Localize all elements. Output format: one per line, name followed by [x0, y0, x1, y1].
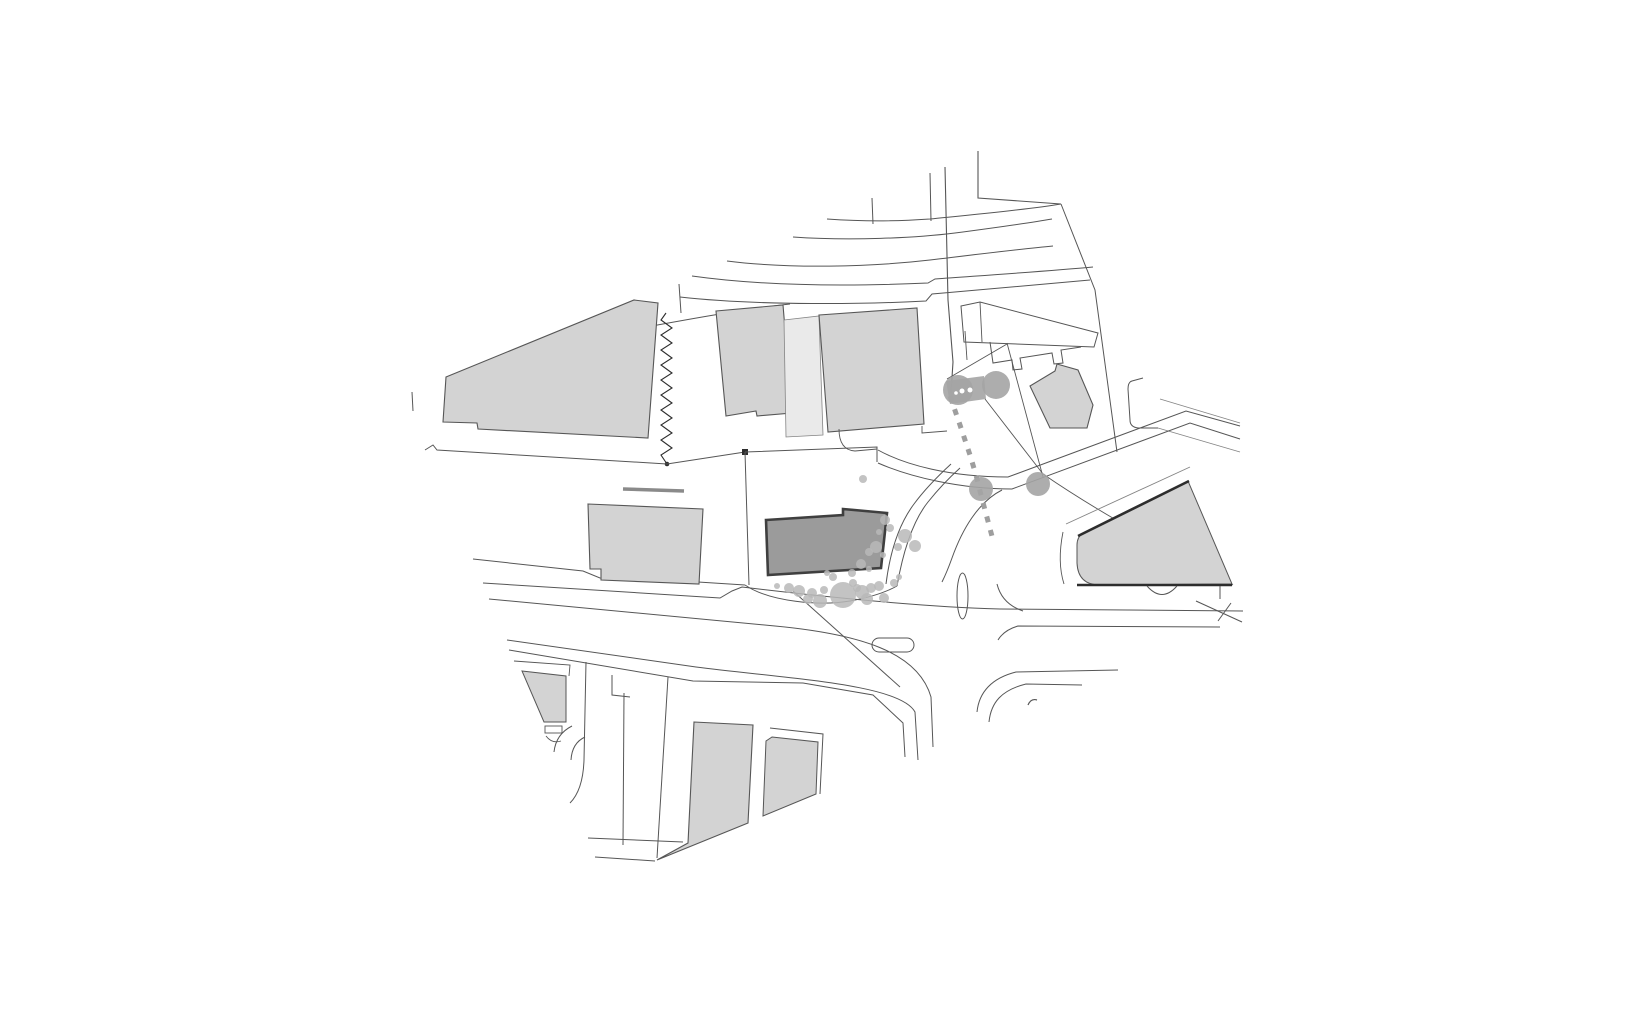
driveway-notch-east [1128, 378, 1158, 428]
sw-bottom-stub-2 [595, 857, 655, 861]
road-edge-under-nw-building [425, 445, 745, 464]
tree-icon [982, 371, 1010, 399]
shrub-icon [874, 581, 884, 591]
shrub-icon [784, 583, 794, 593]
upper-road-curve-2 [793, 219, 1052, 239]
curb-hook-south-street [612, 675, 630, 697]
parcel-top-edge [745, 447, 877, 462]
shrub-icon [853, 584, 861, 592]
upper-road-hook [978, 151, 1061, 204]
sw-street-line-east [657, 677, 668, 858]
curb-arc-left-of-wedge [1060, 532, 1064, 584]
tick-far-left [412, 392, 413, 411]
corner-arc-wedge-west [997, 584, 1023, 611]
building-north-connector [784, 316, 823, 437]
tree-icon [969, 477, 993, 501]
zigzag-property-line [661, 313, 672, 464]
shrub-icon [774, 583, 780, 589]
building-northwest-large [443, 300, 658, 438]
sw-bottom-stub-1 [588, 838, 683, 842]
shrub-icon [898, 529, 912, 543]
main-street-far-lower-edge [998, 626, 1220, 640]
upper-road-curve-1 [827, 204, 1061, 221]
curved-band-outer [897, 468, 960, 586]
south-street-east-arc-1 [977, 670, 1118, 712]
shrub-icon [866, 566, 872, 572]
sw-street-line-mid [623, 693, 624, 845]
upper-road-curve-4 [692, 267, 1093, 285]
tick-mid-upper [679, 284, 681, 313]
tree-icon [1026, 472, 1050, 496]
sw-wedge-step [545, 726, 562, 733]
shrub-icon [890, 579, 898, 587]
shrub-icon [896, 574, 902, 580]
south-street-east-arc-2 [989, 684, 1082, 722]
shrub-icon [803, 594, 813, 604]
site-plan [0, 0, 1640, 1020]
upper-road-curve-5 [680, 280, 1090, 304]
hedge-dot-icon [968, 388, 973, 393]
building-north-b [819, 308, 924, 432]
shrub-icon [886, 524, 894, 532]
shrub-icon [820, 586, 828, 594]
sw-corner-arc-2 [571, 737, 585, 760]
shrub-icon [859, 475, 867, 483]
shrub-icon [856, 559, 866, 569]
shrub-icon [879, 593, 889, 603]
boundary-diag-short [985, 399, 1043, 474]
shrub-icon [793, 585, 805, 597]
traffic-island-oval [957, 573, 968, 619]
ne-road-curb-south [878, 423, 1240, 489]
building-north-a [716, 305, 792, 416]
parcel-west-edge [745, 452, 749, 585]
step-right-of-north-b [922, 426, 947, 433]
ne-road-corner-curve [942, 490, 1002, 582]
hedge-dot-icon [960, 389, 965, 394]
main-building-site [766, 509, 887, 575]
shrub-icon [829, 573, 837, 581]
upper-road-stub-2 [872, 198, 873, 224]
building-south-parallelogram [657, 722, 753, 860]
wall-segment-gray [623, 489, 684, 491]
building-wedge-east [1077, 481, 1232, 585]
building-sw-wedge [522, 671, 566, 722]
apostrophe-mark [1028, 700, 1037, 705]
east-road-edge-1 [1160, 399, 1240, 423]
shrub-icon [880, 552, 886, 558]
shrub-icon [813, 594, 827, 608]
building-ne-rotated [1030, 364, 1093, 428]
traffic-island-rounded [872, 638, 914, 652]
upper-road-stub-1 [930, 173, 931, 221]
shrub-icon [909, 540, 921, 552]
upper-road-curve-3 [727, 246, 1053, 266]
shrub-icon [876, 529, 882, 535]
shrub-icon [861, 593, 873, 605]
sw-corner-arc-1 [554, 726, 572, 752]
survey-line-vertical [945, 167, 953, 393]
hedge-dot-icon [954, 391, 958, 395]
sw-street-curb-west [570, 662, 586, 803]
boundary-ne-slant [1007, 343, 1043, 477]
wedge-bump-arc [1147, 586, 1177, 595]
building-west-small [588, 504, 703, 584]
shrub-icon [865, 548, 873, 556]
shrub-icon [848, 569, 856, 577]
east-road-edge-2 [1158, 428, 1240, 452]
shrub-icon [880, 515, 890, 525]
building-south-b [763, 737, 818, 816]
shrub-icon [894, 543, 902, 551]
site-plan-canvas [0, 0, 1640, 1020]
shrub-icon [824, 570, 830, 576]
